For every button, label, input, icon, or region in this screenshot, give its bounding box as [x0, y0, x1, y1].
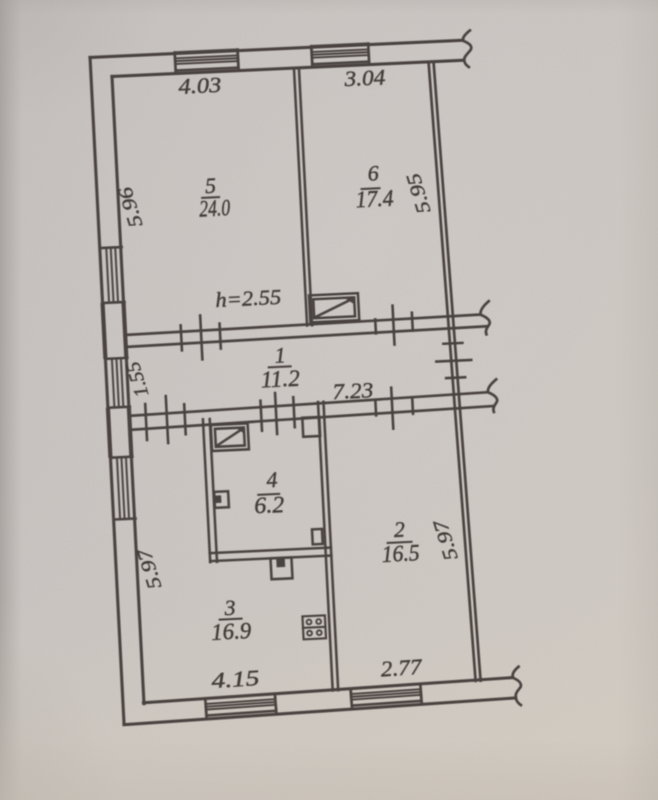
svg-text:6: 6	[367, 160, 379, 185]
svg-text:3: 3	[223, 595, 236, 621]
svg-text:4.15: 4.15	[211, 665, 261, 693]
svg-text:1: 1	[274, 343, 286, 368]
svg-text:24.0: 24.0	[199, 195, 232, 221]
svg-text:2: 2	[393, 517, 405, 542]
svg-text:16.5: 16.5	[381, 540, 420, 567]
svg-text:3.04: 3.04	[343, 64, 386, 91]
svg-text:16.9: 16.9	[211, 618, 253, 645]
svg-text:17.4: 17.4	[355, 186, 394, 213]
svg-text:5: 5	[204, 173, 216, 198]
svg-text:11.2: 11.2	[260, 366, 300, 393]
svg-text:4.03: 4.03	[178, 72, 222, 99]
svg-text:2.77: 2.77	[380, 654, 424, 682]
svg-text:7.23: 7.23	[332, 378, 374, 405]
svg-text:h=2.55: h=2.55	[215, 285, 282, 312]
svg-text:4: 4	[266, 467, 278, 492]
svg-text:6.2: 6.2	[254, 492, 285, 518]
